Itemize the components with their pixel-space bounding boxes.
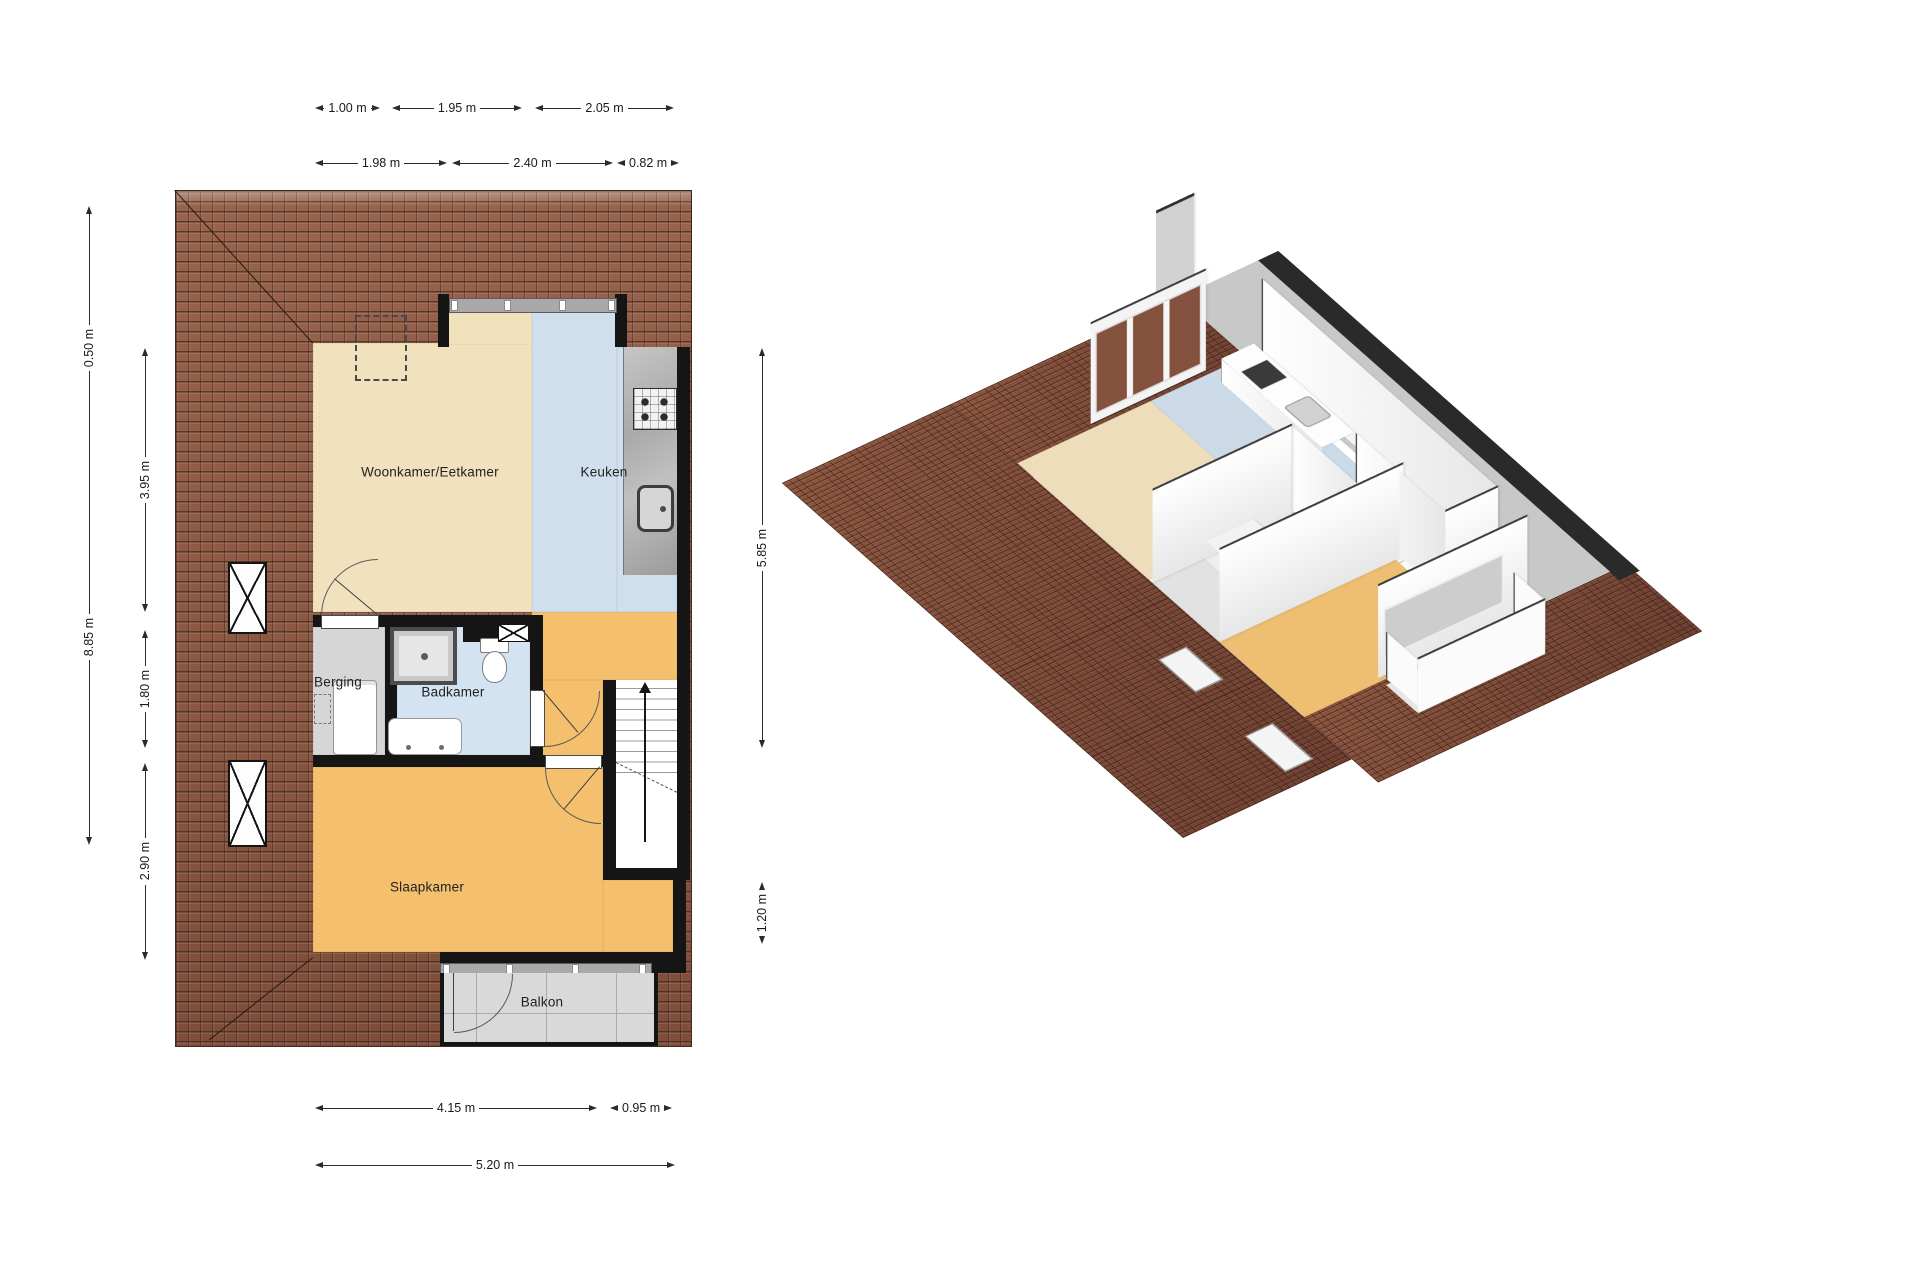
dim-left-inner-a: 3.95 m [138, 348, 152, 612]
toilet-bowl [482, 651, 507, 683]
middle-bottom-wall [313, 755, 545, 767]
bathroom-right-wall-a [530, 615, 543, 690]
room-label-balcony: Balkon [521, 995, 563, 1010]
stair-direction-line [644, 692, 646, 842]
stair-bottom-wall [603, 868, 690, 880]
bedroom-bottom-wall [440, 952, 686, 963]
flue-dashed-outline [355, 315, 407, 381]
storage-wall-stub [313, 615, 321, 627]
bedroom-door [545, 755, 602, 769]
bathroom-door [530, 690, 545, 747]
plan-2d-view: Woonkamer/Eetkamer Keuken Berging Badkam… [175, 190, 690, 1045]
room-label-bathroom: Badkamer [421, 685, 484, 700]
dim-top1-b: 1.95 m [392, 101, 522, 115]
dim-top1-c: 2.05 m [535, 101, 674, 115]
dim-bottom2-a: 5.20 m [315, 1158, 675, 1172]
dim-bottom1-b: 0.95 m [610, 1101, 675, 1115]
roof-window-icon [228, 562, 267, 634]
window-sash [608, 300, 615, 311]
room-label-kitchen: Keuken [581, 465, 628, 480]
dormer-wall-left [438, 294, 449, 347]
dim-top2-c: 0.82 m [617, 156, 673, 170]
roof-window-icon [228, 760, 267, 847]
balcony-door-leaf [453, 973, 454, 1031]
room-label-bedroom: Slaapkamer [390, 880, 464, 895]
dim-left-inner-b: 1.80 m [138, 630, 152, 748]
vent-icon [498, 624, 529, 642]
room-label-storage: Berging [314, 675, 362, 690]
appliance-dashed-outline [314, 694, 331, 724]
dim-top1-a: 1.00 m [315, 101, 380, 115]
kitchen-floor [532, 312, 617, 612]
storage-door [321, 615, 379, 629]
stairs-up-arrow-icon [639, 682, 651, 693]
staircase [616, 680, 677, 868]
dormer-window [449, 298, 617, 313]
bedroom-bottom-wall-2 [650, 963, 686, 973]
dim-top2-b: 2.40 m [452, 156, 613, 170]
window-sash [559, 300, 566, 311]
dim-right-b: 1.20 m [755, 882, 769, 960]
stove-icon [633, 388, 677, 430]
east-wall [677, 347, 690, 880]
floorplan-screenshot: { "view_2d": { "rooms": { "living": "Woo… [0, 0, 1920, 1275]
bedroom-right-wall [673, 880, 686, 963]
kitchen-counter [623, 347, 678, 575]
washbasin-icon [388, 718, 462, 755]
dim-bottom1-a: 4.15 m [315, 1101, 597, 1115]
dim-top2-a: 1.98 m [315, 156, 447, 170]
dim-left-inner-c: 2.90 m [138, 763, 152, 960]
room-label-living: Woonkamer/Eetkamer [361, 465, 499, 480]
stair-left-wall [603, 680, 616, 880]
sink-icon [637, 485, 674, 532]
window-sash [451, 300, 458, 311]
living-room-floor-dormer [447, 312, 532, 345]
window-sash [504, 300, 511, 311]
dim-left-outer: 0.50 m 8.85 m [82, 206, 96, 845]
shower-icon [390, 627, 457, 685]
bedroom-floor-2 [603, 880, 673, 952]
hallway-floor [532, 612, 677, 680]
water-heater-icon [333, 680, 377, 755]
dim-right-a: 5.85 m [755, 348, 769, 748]
